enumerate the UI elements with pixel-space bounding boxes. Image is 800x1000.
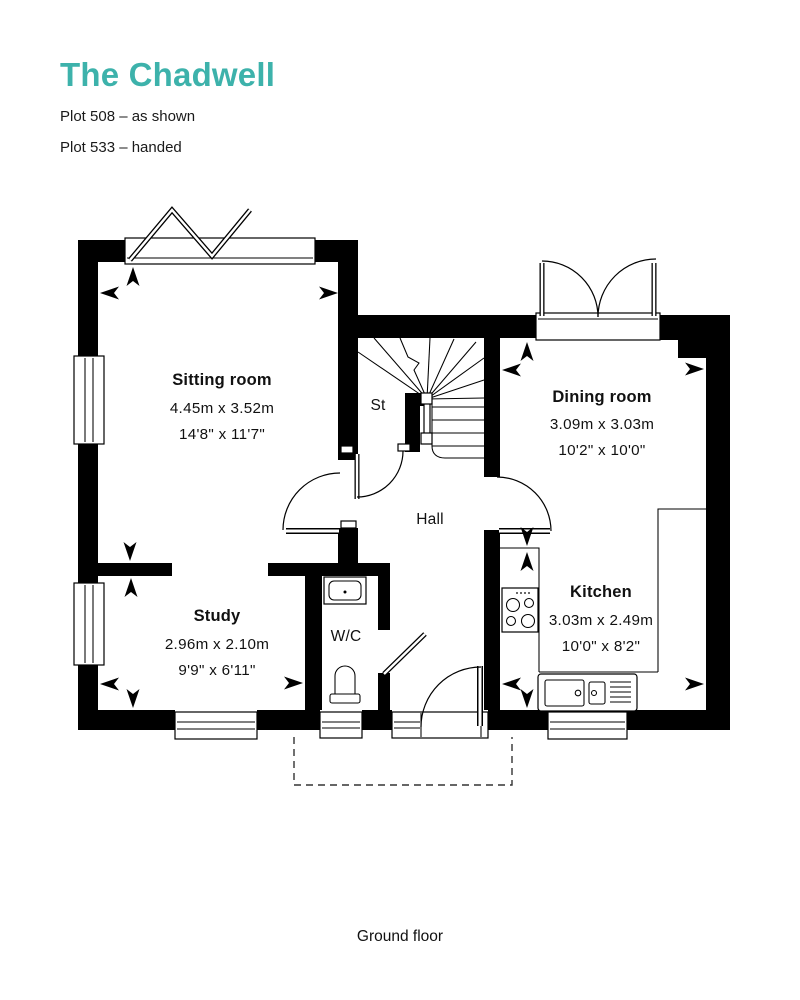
st-cupboard-door-arc — [357, 451, 403, 497]
floor-caption: Ground floor — [357, 928, 443, 945]
door-jamb — [341, 446, 353, 453]
room-label-dining-room: Dining room — [552, 388, 651, 406]
right-wall — [706, 315, 730, 710]
room-label-sitting-room: Sitting room — [172, 371, 272, 389]
room-dims-metric-sitting-room: 4.45m x 3.52m — [170, 400, 274, 417]
hall-top-wall — [358, 315, 538, 338]
sitting-depth-arrow-bottom — [124, 542, 137, 561]
wc-door — [384, 634, 425, 674]
room-labels: Sitting room 4.45m x 3.52m 14'8" x 11'7"… — [165, 371, 654, 945]
kitchen-width-arrow-right — [685, 678, 704, 691]
sitting-room-right-wall — [338, 240, 358, 460]
kitchen-width-arrow-left — [502, 678, 521, 691]
stairs-handrail — [424, 403, 430, 434]
floor-plan-drawing: Sitting room 4.45m x 3.52m 14'8" x 11'7"… — [0, 0, 800, 1000]
study-left-window — [74, 583, 104, 665]
porch-canopy-dashed-outline — [294, 737, 512, 785]
label-hall: Hall — [416, 511, 444, 528]
sitting-width-arrow-left — [100, 287, 119, 300]
room-dims-imperial-kitchen: 10'0" x 8'2" — [562, 638, 640, 655]
sitting-study-divider-wall — [98, 563, 172, 576]
hall-kitchen-wall — [484, 530, 500, 710]
door-jamb — [341, 521, 356, 528]
top-left-corner-wall — [78, 240, 127, 262]
floorplan-page: The Chadwell Plot 508 – as shown Plot 53… — [0, 0, 800, 1000]
dining-depth-arrow-top — [521, 342, 534, 361]
french-door-left-swing-arc — [542, 261, 598, 317]
study-width-arrow-left — [100, 678, 119, 691]
stairs-newel-post — [421, 393, 432, 404]
room-label-kitchen: Kitchen — [570, 583, 632, 601]
wc-right-wall-upper — [378, 576, 390, 630]
kitchen-depth-arrow-top — [521, 552, 534, 571]
room-dims-metric-kitchen: 3.03m x 2.49m — [549, 612, 653, 629]
wc-north-wall — [268, 563, 390, 576]
dining-width-arrow-left — [502, 364, 521, 377]
dining-width-arrow-right — [685, 363, 704, 376]
room-dims-imperial-dining-room: 10'2" x 10'0" — [558, 442, 645, 459]
label-st-cupboard: St — [370, 397, 386, 414]
wc-toilet — [330, 666, 360, 703]
sitting-room-door-arc — [283, 473, 340, 530]
study-depth-arrow-top — [125, 578, 138, 597]
wc-left-wall — [305, 576, 322, 710]
study-bottom-window — [175, 712, 257, 739]
wc-basin — [324, 577, 366, 604]
french-door-right-swing-arc — [598, 259, 656, 317]
room-label-study: Study — [194, 607, 241, 625]
study-width-arrow-right — [284, 677, 303, 690]
bifold-doors — [125, 210, 315, 264]
sitting-depth-arrow-top — [127, 267, 140, 286]
room-dims-imperial-sitting-room: 14'8" x 11'7" — [179, 426, 265, 443]
hob — [502, 588, 538, 632]
french-doors — [536, 259, 660, 340]
dining-step-block — [678, 340, 706, 358]
room-dims-metric-study: 2.96m x 2.10m — [165, 636, 269, 653]
wc-bottom-window — [320, 712, 362, 738]
dining-room-door-arc — [497, 477, 551, 531]
wc-right-wall-stub — [378, 673, 390, 710]
study-depth-arrow-bottom — [127, 689, 140, 708]
kitchen-depth-arrow-bottom — [521, 689, 534, 708]
st-cupboard-door — [357, 451, 403, 499]
label-wc: W/C — [331, 628, 362, 645]
front-door-threshold-sidelight — [392, 712, 488, 738]
sitting-room-left-window — [74, 356, 104, 444]
kitchen-sink — [538, 674, 637, 711]
stairs-newel-post — [421, 433, 432, 444]
room-dims-imperial-study: 9'9" x 6'11" — [178, 662, 255, 679]
sitting-room-door — [283, 473, 340, 531]
stairs-dining-wall — [484, 337, 500, 477]
sitting-width-arrow-right — [319, 287, 338, 300]
door-jamb — [398, 444, 410, 451]
room-dims-metric-dining-room: 3.09m x 3.03m — [550, 416, 654, 433]
kitchen-bottom-window — [548, 712, 627, 739]
dining-room-door — [497, 477, 551, 531]
